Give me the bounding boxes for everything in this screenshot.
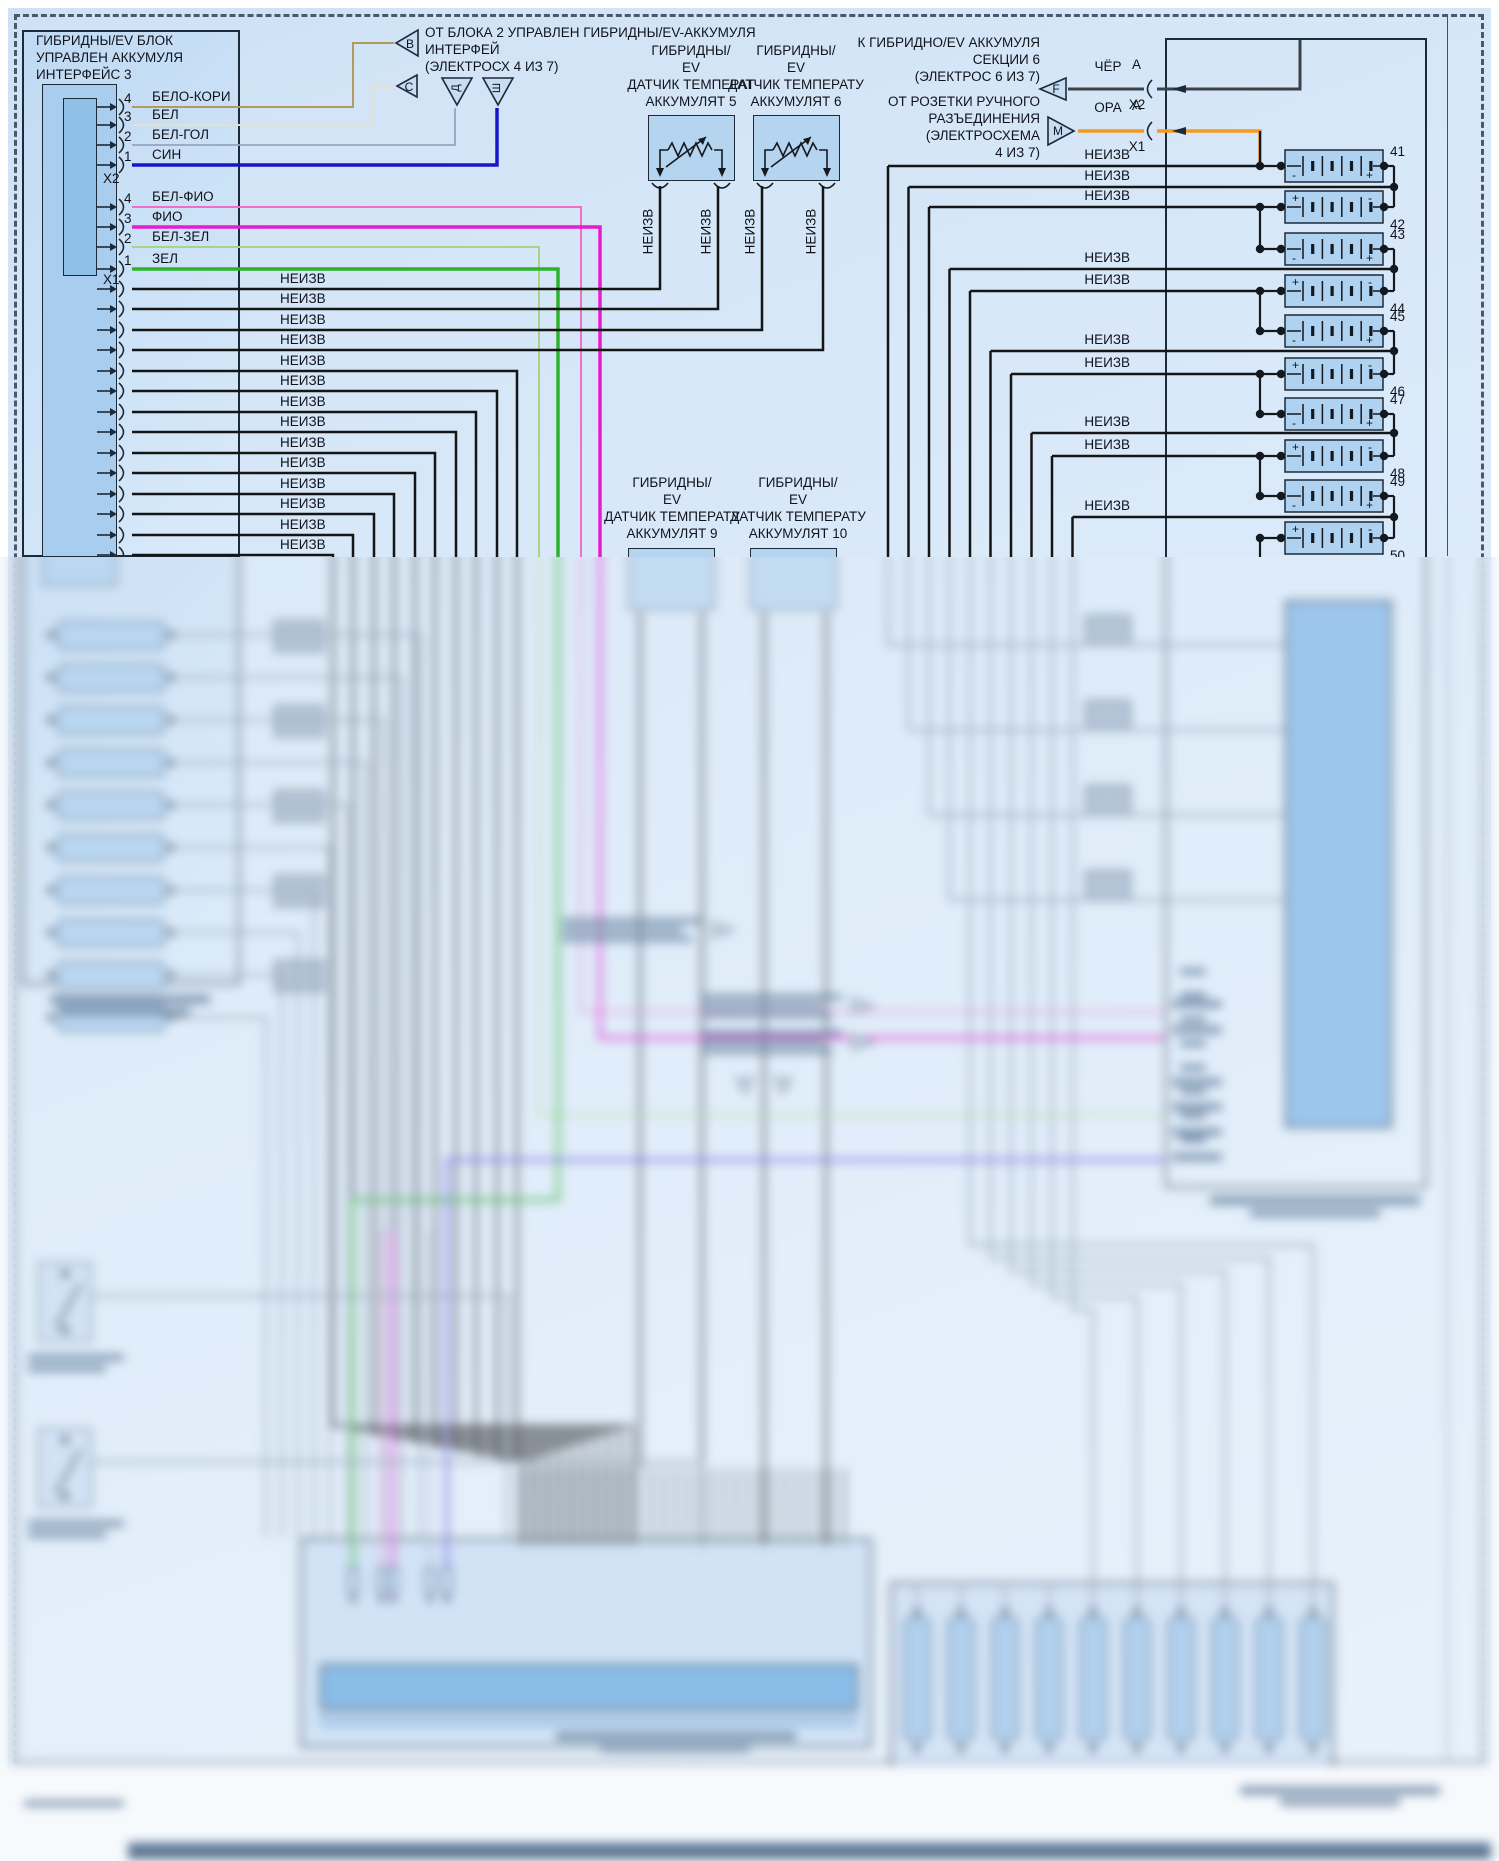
blurred-component — [348, 1568, 358, 1594]
terminal-bracket-icon — [757, 183, 773, 188]
junction-dot — [1380, 410, 1388, 418]
wire — [171, 763, 366, 1539]
junction-dot — [47, 716, 55, 724]
junction-dot — [1390, 347, 1398, 355]
blurred-text-bar — [1180, 968, 1206, 975]
pin-bracket-icon — [119, 363, 124, 379]
cell-plus-sign: + — [1292, 440, 1299, 454]
blurred-text-bar — [1172, 1103, 1222, 1111]
junction-dot — [444, 1597, 450, 1603]
blurred-text-bar — [702, 1012, 832, 1018]
junction-dot — [62, 1271, 69, 1278]
pin-arrow-icon — [110, 367, 117, 375]
blurred-left-cell — [58, 750, 164, 777]
pin-bracket-icon — [119, 117, 124, 133]
junction-dot — [1089, 1744, 1097, 1752]
blurred-text-bar — [1180, 1040, 1206, 1047]
terminal-arrow-icon — [718, 168, 726, 177]
pin-arrow-icon — [110, 243, 117, 251]
pin-arrow-icon — [110, 490, 117, 498]
pin-arrow-icon — [110, 161, 117, 169]
blurred-right-cell — [1080, 1618, 1106, 1740]
blurred-text-bar — [28, 1520, 124, 1527]
pin-arrow-icon — [110, 387, 117, 395]
junction-dot — [1045, 1744, 1053, 1752]
blurred-text-bar — [28, 1365, 106, 1372]
blurred-text-bar — [28, 1531, 106, 1538]
pin-bracket-icon — [119, 383, 124, 399]
pin-arrow-icon — [110, 510, 117, 518]
wire-БЕЛ-ФИО — [132, 207, 581, 600]
pin-arrow-icon — [110, 305, 117, 313]
cell-minus-sign: - — [1292, 333, 1296, 347]
blurred-text-bar — [60, 1008, 190, 1016]
blurred-text-bar — [702, 994, 842, 1000]
blurred-text-bar — [702, 1048, 832, 1054]
terminal-arrow-icon — [823, 168, 831, 177]
wire — [333, 557, 632, 1545]
junction-dot — [1380, 287, 1388, 295]
junction-dot — [350, 1597, 356, 1603]
pin-arrow-icon — [110, 428, 117, 436]
junction-dot — [47, 929, 55, 937]
blurred-text-bar — [562, 918, 702, 924]
wire — [1052, 557, 1137, 1612]
pin-bracket-icon — [119, 424, 124, 440]
wire — [171, 933, 298, 1539]
pin-bracket-icon — [119, 465, 124, 481]
junction-dot — [390, 1597, 396, 1603]
junction-dot — [913, 1744, 921, 1752]
blurred-component — [442, 1568, 452, 1594]
junction-dot — [1277, 287, 1285, 295]
blurred-text-bar — [702, 1030, 842, 1036]
wire — [1073, 557, 1094, 1612]
blurred-text-bar — [1280, 1798, 1400, 1806]
cell-minus-sign: - — [1368, 522, 1372, 536]
pin-arrow-icon — [110, 326, 117, 334]
cell-minus-sign: - — [1368, 275, 1372, 289]
wire — [888, 557, 1285, 645]
blurred-text-bar — [600, 1744, 750, 1752]
blurred-right-cell — [1036, 1618, 1062, 1740]
junction-dot — [1390, 265, 1398, 273]
junction-dot — [62, 1493, 69, 1500]
cell-minus-sign: - — [1368, 358, 1372, 372]
svg-label: Д — [450, 84, 462, 92]
blurred-text-bar — [1172, 1128, 1222, 1136]
pin-bracket-icon — [119, 239, 124, 255]
blurred-component — [388, 1568, 398, 1594]
blurred-left-cell — [58, 877, 164, 904]
junction-dot — [1380, 492, 1388, 500]
blurred-right-cell — [1168, 1618, 1194, 1740]
blurred-text-bar — [28, 1354, 124, 1361]
wire — [581, 557, 1165, 1012]
pin-bracket-icon — [119, 199, 124, 215]
blurred-right-cell — [992, 1618, 1018, 1740]
blurred-text-bar — [702, 1003, 822, 1009]
blurred-text-bar — [1210, 1196, 1420, 1205]
junction-dot — [47, 1014, 55, 1022]
into-block-arrow-icon — [1172, 85, 1186, 93]
junction-dot — [1001, 1744, 1009, 1752]
blurred-text-bar — [562, 927, 682, 933]
blurred-text-bar — [24, 1800, 124, 1807]
blurred-text-bar — [1240, 1786, 1440, 1795]
junction-dot — [427, 1597, 433, 1603]
pin-arrow-icon — [110, 408, 117, 416]
junction-dot — [1380, 203, 1388, 211]
blurred-right-cell — [1256, 1618, 1282, 1740]
wire — [171, 678, 402, 1539]
junction-dot — [47, 631, 55, 639]
cell-number: 43 — [1390, 227, 1405, 242]
cell-number: 49 — [1390, 474, 1405, 489]
wire — [171, 890, 314, 1538]
blurred-right-cell — [1124, 1618, 1150, 1740]
junction-dot — [1380, 452, 1388, 460]
wire-БЕЛ-ЗЕЛ — [132, 247, 539, 600]
junction-dot — [1390, 513, 1398, 521]
pin-bracket-icon — [119, 527, 124, 543]
wire-БЕЛ-ГОЛ — [132, 108, 455, 145]
junction-dot — [1390, 429, 1398, 437]
blurred-text-bar — [50, 995, 210, 1004]
junction-dot — [1380, 162, 1388, 170]
blurred-text-bar — [1172, 1026, 1222, 1034]
wire — [1032, 557, 1182, 1612]
wire — [950, 557, 1286, 900]
plug-bracket-icon — [1148, 80, 1153, 98]
junction-dot — [1277, 452, 1285, 460]
junction-dot — [47, 801, 55, 809]
pin-bracket-icon — [119, 219, 124, 235]
cell-minus-sign: - — [1292, 416, 1296, 430]
thermistor — [714, 150, 722, 168]
wire-cher — [1157, 40, 1300, 89]
junction-dot — [1277, 245, 1285, 253]
blurred-left-cell — [58, 665, 164, 692]
cell-minus-sign: - — [1292, 168, 1296, 182]
svg-label: Ш — [491, 83, 503, 93]
cell-plus-sign: + — [1292, 522, 1299, 536]
pin-arrow-icon — [110, 469, 117, 477]
pin-bracket-icon — [119, 445, 124, 461]
junction-dot — [1177, 1744, 1185, 1752]
blurred-component — [425, 1568, 435, 1594]
terminal-bracket-icon — [714, 183, 730, 188]
svg-label: F — [1052, 82, 1059, 96]
thermistor — [819, 150, 827, 168]
blurred-right-cell — [904, 1618, 930, 1740]
pin-bracket-icon — [119, 137, 124, 153]
blurred-text-bar — [1180, 1112, 1206, 1119]
cell-number: 41 — [1390, 144, 1405, 159]
cell-minus-sign: - — [1368, 191, 1372, 205]
wire — [517, 557, 524, 1545]
blurred-lower-region — [0, 557, 1499, 1861]
cell-plus-sign: + — [1366, 333, 1373, 347]
thermistor-arrowhead-icon — [803, 137, 811, 145]
cell-plus-sign: + — [1366, 251, 1373, 265]
pin-arrow-icon — [110, 103, 117, 111]
junction-dot — [379, 1597, 385, 1603]
blurred-text-bar — [1250, 1209, 1380, 1217]
pin-bracket-icon — [119, 322, 124, 338]
thermistor — [765, 150, 773, 168]
junction-dot — [1380, 245, 1388, 253]
plug-bracket-icon — [1148, 122, 1153, 140]
wire — [171, 848, 330, 1539]
wire — [171, 1018, 266, 1539]
blurred-text-bar — [1172, 1000, 1222, 1008]
cell-plus-sign: + — [1292, 358, 1299, 372]
blurred-text-bar — [1180, 992, 1206, 999]
shape — [774, 1078, 792, 1094]
shape — [736, 1078, 754, 1094]
pin-arrow-icon — [110, 265, 117, 273]
pin-bracket-icon — [119, 342, 124, 358]
pin-arrow-icon — [110, 121, 117, 129]
svg-label: M — [1053, 124, 1063, 138]
thermistor-arrowhead-icon — [698, 137, 706, 145]
blurred-left-cell — [58, 962, 164, 989]
cell-plus-sign: + — [1366, 416, 1373, 430]
pin-bracket-icon — [119, 281, 124, 297]
thermistor — [660, 150, 668, 168]
cell-number: 45 — [1390, 309, 1405, 324]
wire — [171, 805, 348, 1538]
pin-bracket-icon — [119, 157, 124, 173]
pin-arrow-icon — [110, 223, 117, 231]
junction-dot — [1265, 1744, 1273, 1752]
junction-dot — [47, 886, 55, 894]
terminal-arrow-icon — [656, 168, 664, 177]
wiring-diagram-page: { "palette":{ "diagram_bg":"#dcebfa","bl… — [0, 0, 1499, 1861]
blurred-text-bar — [1172, 1078, 1222, 1086]
bottom-legend-strip — [128, 1842, 1491, 1859]
junction-dot — [47, 759, 55, 767]
junction-dot — [1133, 1744, 1141, 1752]
blurred-text-bar — [1180, 1064, 1206, 1071]
blurred-text-bar — [1180, 1136, 1206, 1143]
wire — [600, 557, 1165, 1038]
pin-bracket-icon — [119, 486, 124, 502]
pin-bracket-icon — [119, 301, 124, 317]
junction-dot — [47, 971, 55, 979]
blurred-text-bar — [562, 936, 692, 942]
wire-БЕЛО-КОРИ — [132, 43, 394, 107]
blurred-text-bar — [1180, 1088, 1206, 1095]
blurred-text-bar — [1180, 1016, 1206, 1023]
junction-dot — [1380, 370, 1388, 378]
blurred-left-cell — [58, 920, 164, 947]
wire-ФИО — [132, 227, 600, 600]
cell-minus-sign: - — [1292, 498, 1296, 512]
into-block-arrow-icon — [1172, 127, 1186, 135]
wire-ora — [1157, 131, 1260, 164]
blurred-left-cell — [58, 707, 164, 734]
cell-plus-sign: + — [1292, 275, 1299, 289]
junction-dot — [1277, 534, 1285, 542]
junction-dot — [1390, 183, 1398, 191]
junction-dot — [1277, 492, 1285, 500]
blurred-right-cell — [948, 1618, 974, 1740]
junction-dot — [62, 1327, 69, 1334]
wire — [394, 557, 596, 1545]
svg-label: С — [405, 80, 414, 94]
wire — [539, 557, 1165, 1115]
cell-number: 47 — [1390, 392, 1405, 407]
junction-dot — [1277, 203, 1285, 211]
blurred-right-cell — [1212, 1618, 1238, 1740]
wire — [929, 557, 1285, 815]
pin-arrow-icon — [110, 531, 117, 539]
blurred-text-bar — [1172, 1153, 1222, 1161]
junction-dot — [62, 1437, 69, 1444]
junction-dot — [1277, 410, 1285, 418]
junction-dot — [47, 674, 55, 682]
pin-arrow-icon — [110, 285, 117, 293]
junction-dot — [1380, 327, 1388, 335]
terminal-arrow-icon — [761, 168, 769, 177]
wire — [56, 1284, 80, 1328]
junction-dot — [1277, 162, 1285, 170]
cell-plus-sign: + — [1366, 498, 1373, 512]
blurred-component — [377, 1568, 387, 1594]
wire-ЗЕЛ — [132, 269, 558, 600]
pin-bracket-icon — [119, 404, 124, 420]
wire-БЕЛ — [132, 86, 394, 125]
terminal-bracket-icon — [652, 183, 668, 188]
blurred-text-bar — [702, 1039, 822, 1045]
pin-arrow-icon — [110, 449, 117, 457]
wire — [92, 1462, 702, 1538]
pin-arrow-icon — [110, 203, 117, 211]
pin-bracket-icon — [119, 261, 124, 277]
cell-minus-sign: - — [1292, 251, 1296, 265]
blurred-left-cell — [58, 792, 164, 819]
wire — [909, 557, 1286, 730]
cell-plus-sign: + — [1292, 191, 1299, 205]
wire-СИН — [132, 108, 497, 165]
blurred-right-cell — [1300, 1618, 1326, 1740]
wire — [56, 1450, 80, 1494]
shape — [712, 922, 734, 938]
junction-dot — [1277, 327, 1285, 335]
pin-bracket-icon — [119, 506, 124, 522]
wire — [374, 557, 608, 1545]
cell-plus-sign: + — [1366, 168, 1373, 182]
junction-dot — [1277, 370, 1285, 378]
blurred-left-cell — [58, 835, 164, 862]
wire — [970, 557, 1313, 1612]
cell-minus-sign: - — [1368, 440, 1372, 454]
pin-arrow-icon — [110, 141, 117, 149]
junction-dot — [1309, 1744, 1317, 1752]
blurred-text-bar — [556, 1732, 796, 1741]
svg-label: В — [406, 37, 414, 51]
junction-dot — [1221, 1744, 1229, 1752]
terminal-bracket-icon — [819, 183, 835, 188]
junction-dot — [957, 1744, 965, 1752]
junction-dot — [47, 844, 55, 852]
pin-bracket-icon — [119, 99, 124, 115]
pin-arrow-icon — [110, 346, 117, 354]
junction-dot — [1380, 534, 1388, 542]
wire — [476, 557, 548, 1545]
blurred-left-cell — [58, 622, 164, 649]
